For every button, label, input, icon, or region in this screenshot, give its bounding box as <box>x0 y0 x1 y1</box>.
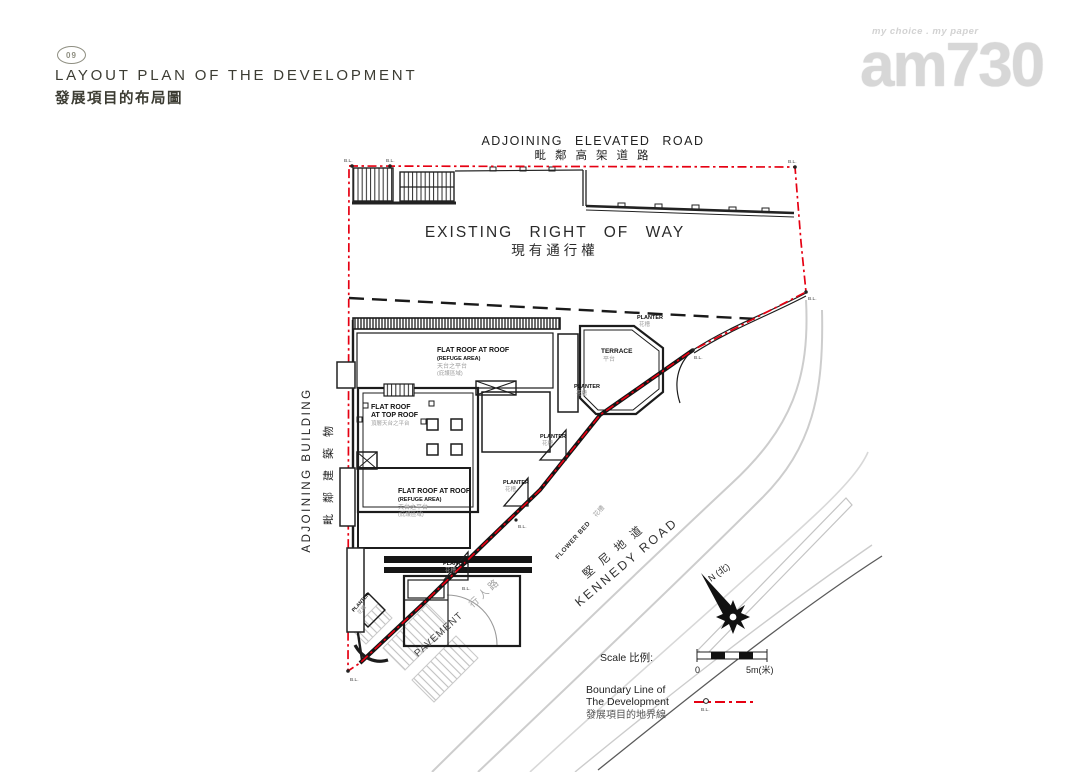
svg-text:FLAT ROOF AT ROOF: FLAT ROOF AT ROOF <box>398 488 471 495</box>
svg-text:B.L.: B.L. <box>350 677 359 683</box>
svg-text:(庇護區域): (庇護區域) <box>437 369 463 377</box>
svg-text:花槽: 花槽 <box>445 566 457 574</box>
site-plan: ADJOINING ELEVATED ROAD 毗鄰高架道路 EXISTING … <box>0 0 1088 772</box>
adjoining-elevated-road-label-zh: 毗鄰高架道路 <box>535 148 658 162</box>
svg-text:AT TOP ROOF: AT TOP ROOF <box>371 412 419 419</box>
svg-text:B.L.: B.L. <box>694 355 703 361</box>
boundary-legend: Boundary Line of The Development 發展項目的地界… <box>586 684 757 721</box>
svg-text:B.L.: B.L. <box>788 159 797 165</box>
svg-text:PLANTER: PLANTER <box>637 315 663 321</box>
planter-label-1: PLANTER 花槽 <box>637 315 663 328</box>
scale-label: Scale 比例: <box>600 651 653 664</box>
svg-text:B.L.: B.L. <box>462 586 471 592</box>
right-of-way-dashed-line <box>349 298 757 319</box>
adjoining-elevated-road-label: ADJOINING ELEVATED ROAD <box>481 134 704 148</box>
adjoining-building-label-zh: 毗鄰建築物 <box>321 415 335 525</box>
boundary-legend-sample: B.L. <box>694 699 757 713</box>
svg-text:FLAT ROOF: FLAT ROOF <box>371 404 411 411</box>
svg-text:花槽: 花槽 <box>542 439 554 447</box>
svg-text:天台之平台: 天台之平台 <box>437 362 467 370</box>
flat-roof-at-roof-label-1: FLAT ROOF AT ROOF (REFUGE AREA) 天台之平台 (庇… <box>437 347 510 377</box>
svg-text:B.L.: B.L. <box>518 524 527 530</box>
existing-right-of-way-label: EXISTING RIGHT OF WAY <box>425 224 685 241</box>
svg-text:花槽: 花槽 <box>505 485 517 493</box>
planter-label-4: PLANTER 花槽 <box>503 480 529 493</box>
pavement-label-zh: 行人路 <box>466 574 504 610</box>
svg-text:(庇護區域): (庇護區域) <box>398 510 424 518</box>
svg-text:B.L.: B.L. <box>386 158 395 164</box>
svg-text:天台之平台: 天台之平台 <box>398 503 428 511</box>
flat-roof-at-top-roof-label: FLAT ROOF AT TOP ROOF 頂層天台之平台 <box>371 404 419 427</box>
planter-label-3: PLANTER 花槽 <box>540 434 566 447</box>
svg-text:B.L.: B.L. <box>808 296 817 302</box>
left-annex-boxes <box>337 362 364 632</box>
north-compass: N (北) <box>701 561 750 634</box>
svg-text:(REFUGE AREA): (REFUGE AREA) <box>437 356 481 362</box>
scale-zero: 0 <box>695 665 700 675</box>
boundary-legend-zh: 發展項目的地界線 <box>586 708 666 721</box>
svg-text:TERRACE: TERRACE <box>601 348 633 355</box>
flat-roof-at-roof-label-2: FLAT ROOF AT ROOF (REFUGE AREA) 天台之平台 (庇… <box>398 488 471 518</box>
scale-section: Scale 比例: 0 5m(米) <box>600 649 774 675</box>
svg-text:FLAT ROOF AT ROOF: FLAT ROOF AT ROOF <box>437 347 510 354</box>
north-label: N (北) <box>706 561 731 583</box>
svg-text:PLANTER: PLANTER <box>540 434 566 440</box>
svg-text:頂層天台之平台: 頂層天台之平台 <box>371 419 410 427</box>
scale-bar <box>697 649 767 662</box>
svg-text:(REFUGE AREA): (REFUGE AREA) <box>398 497 442 503</box>
terrace-label: TERRACE 平台 <box>601 348 633 363</box>
svg-text:花槽: 花槽 <box>576 389 588 397</box>
elevated-road-structures <box>352 167 794 217</box>
planter-label-2: PLANTER 花槽 <box>574 384 600 397</box>
svg-text:花槽: 花槽 <box>639 320 651 328</box>
kennedy-road-label: KENNEDY ROAD <box>572 515 680 609</box>
scale-5m: 5m(米) <box>746 664 774 675</box>
svg-text:B.L.: B.L. <box>701 707 710 713</box>
svg-text:PLANTER: PLANTER <box>574 384 600 390</box>
boundary-legend-line2: The Development <box>586 696 669 708</box>
svg-text:B.L.: B.L. <box>344 158 353 164</box>
existing-right-of-way-label-zh: 現有通行權 <box>511 243 599 258</box>
svg-text:PLANTER: PLANTER <box>443 561 469 567</box>
svg-text:平台: 平台 <box>603 355 615 363</box>
flower-bed-label-zh: 花槽 <box>591 503 607 519</box>
flower-bed-label: FLOWER BED <box>554 520 592 561</box>
boundary-legend-line1: Boundary Line of <box>586 684 665 696</box>
svg-text:PLANTER: PLANTER <box>503 480 529 486</box>
adjoining-building-label: ADJOINING BUILDING <box>301 387 313 552</box>
plan-labels: ADJOINING ELEVATED ROAD 毗鄰高架道路 EXISTING … <box>301 134 817 683</box>
